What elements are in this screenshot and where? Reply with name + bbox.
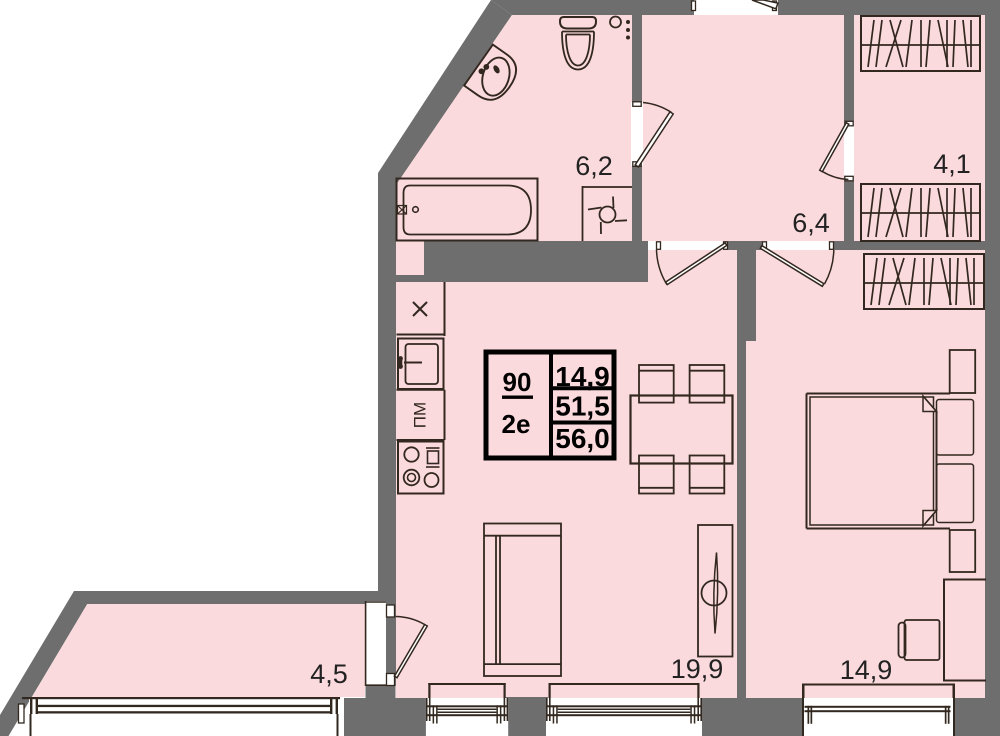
svg-text:19,9: 19,9 xyxy=(671,654,724,684)
svg-text:6,2: 6,2 xyxy=(575,151,613,181)
svg-text:4,5: 4,5 xyxy=(310,659,348,689)
svg-text:14,9: 14,9 xyxy=(840,655,893,685)
svg-text:90: 90 xyxy=(503,367,532,397)
svg-text:6,4: 6,4 xyxy=(792,208,830,238)
svg-text:56,0: 56,0 xyxy=(555,423,610,454)
svg-text:ПМ: ПМ xyxy=(410,402,429,428)
svg-text:2е: 2е xyxy=(502,409,531,439)
svg-text:14,9: 14,9 xyxy=(555,361,610,392)
svg-text:51,5: 51,5 xyxy=(555,391,610,422)
svg-text:4,1: 4,1 xyxy=(933,149,971,179)
